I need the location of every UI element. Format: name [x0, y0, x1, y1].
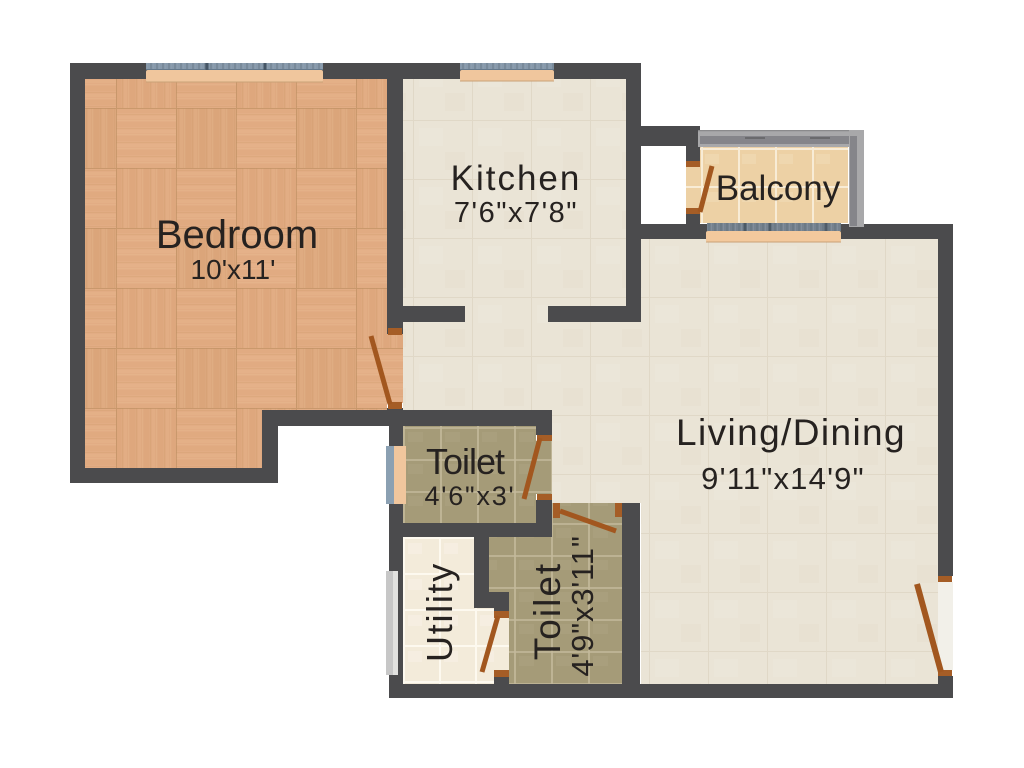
svg-text:Balcony: Balcony — [716, 169, 841, 208]
svg-text:Kitchen: Kitchen — [451, 159, 582, 198]
svg-text:10'x11': 10'x11' — [191, 254, 276, 285]
svg-text:4'9"x3'11": 4'9"x3'11" — [565, 535, 600, 676]
svg-text:Bedroom: Bedroom — [156, 213, 318, 257]
svg-text:Living/Dining: Living/Dining — [676, 412, 906, 453]
svg-text:Toilet: Toilet — [426, 441, 505, 482]
svg-text:Toilet: Toilet — [527, 562, 568, 660]
svg-text:7'6"x7'8": 7'6"x7'8" — [454, 197, 578, 229]
svg-text:4'6"x3': 4'6"x3' — [424, 481, 515, 511]
svg-text:9'11"x14'9": 9'11"x14'9" — [701, 461, 865, 496]
svg-text:Utility: Utility — [419, 562, 460, 662]
